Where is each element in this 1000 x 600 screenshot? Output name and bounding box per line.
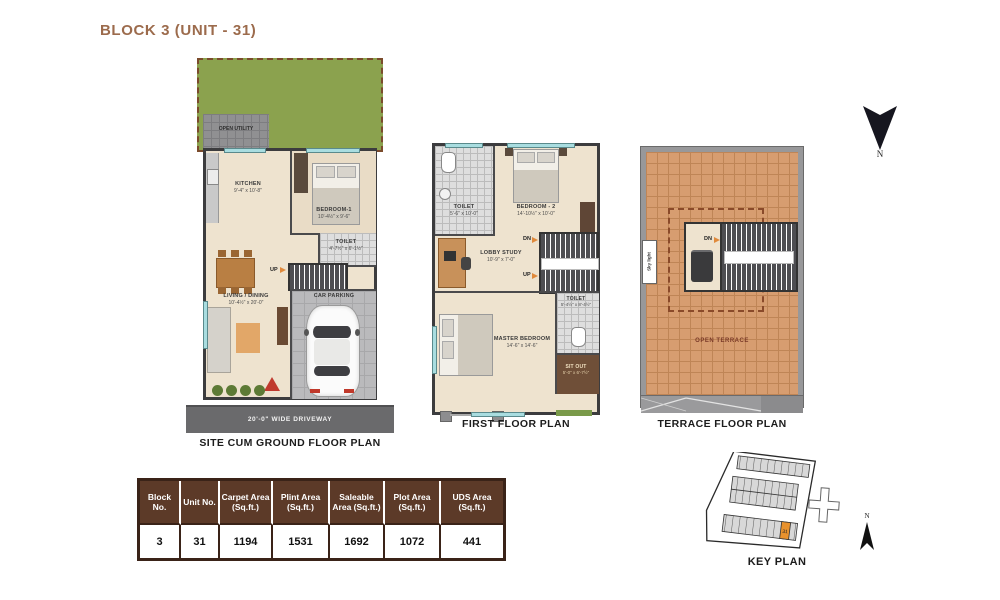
water-tank — [691, 250, 713, 282]
highlighted-plot-number: 31 — [782, 529, 788, 536]
shrub — [212, 385, 223, 396]
cell-saleable-area: 1692 — [330, 525, 385, 558]
terrace-lower-roof-band — [641, 395, 803, 413]
kitchen-counter — [206, 153, 219, 223]
stair-landing — [724, 251, 794, 264]
open-utility-area: OPEN UTILITY — [203, 114, 269, 148]
open-terrace-label-wrap: OPEN TERRACE — [682, 338, 762, 345]
first-floor-caption: FIRST FLOOR PLAN — [432, 418, 600, 430]
car-taillight — [344, 389, 354, 393]
key-plan-north-letter: N — [864, 512, 869, 520]
room-label-bedroom2: BEDROOM - 2 14'-10½" x 10'-0" — [493, 204, 579, 217]
terrace-floor-caption: TERRACE FLOOR PLAN — [641, 418, 803, 430]
room-label-bedroom1: BEDROOM-1 10'-4½" x 9'-6" — [298, 207, 370, 220]
window-icon — [507, 143, 575, 148]
key-plan-north-arrow-icon — [860, 522, 874, 550]
staircase — [720, 222, 798, 292]
key-plan-caption: KEY PLAN — [712, 556, 842, 568]
col-header-uds: UDS Area (Sq.ft.) — [441, 481, 503, 525]
cell-unit-no: 31 — [181, 525, 220, 558]
first-floor-plan: TOILET 5'-6" x 10'-0" BEDROOM - 2 14'-10… — [432, 143, 600, 415]
chair — [218, 250, 226, 257]
shrub — [226, 385, 237, 396]
room-label-toilet: TOILET 4'-7½" x 6'-1½" — [318, 239, 374, 252]
skylight-label: Sky light — [647, 243, 652, 281]
car-mirror — [304, 329, 309, 336]
stair-landing — [541, 258, 599, 270]
tv-console — [277, 307, 288, 345]
brochure-page: BLOCK 3 (UNIT - 31) OPEN UTILITY KITCHEN… — [0, 0, 1000, 600]
pillow — [442, 341, 454, 359]
sofa — [207, 307, 231, 373]
dn-arrow-icon — [714, 237, 720, 243]
key-plan-map: 31 N — [700, 452, 890, 556]
bed — [513, 149, 559, 203]
rug — [236, 323, 260, 353]
ground-floor-caption: SITE CUM GROUND FLOOR PLAN — [197, 437, 383, 449]
staircase — [539, 232, 599, 294]
col-header-carpet: Carpet Area (Sq.ft.) — [220, 481, 273, 525]
dn-label: DN — [523, 236, 531, 242]
north-arrow-icon: N — [858, 102, 902, 158]
pillow — [517, 152, 535, 163]
open-utility-label: OPEN UTILITY — [203, 126, 269, 132]
up-label: UP — [270, 267, 278, 273]
room-label-living-dining: LIVING / DINING 10'-4½" x 20'-0" — [210, 293, 282, 306]
shrub — [254, 385, 265, 396]
room-label-master-bedroom: MASTER BEDROOM 14'-6" x 14'-6" — [491, 336, 553, 349]
stair-headroom — [684, 222, 724, 292]
room-label-lobby-study: LOBBY STUDY 10'-9" x 7'-0" — [473, 250, 529, 263]
car-windshield — [313, 326, 351, 338]
window-icon — [471, 412, 525, 417]
study-desk — [438, 238, 466, 288]
room-label-kitchen: KITCHEN 9'-4" x 10'-8" — [220, 181, 276, 194]
gable-lines-icon — [641, 396, 803, 413]
kitchen-sink — [207, 169, 219, 185]
pillow — [537, 152, 555, 163]
window-icon — [203, 301, 208, 349]
pillow — [316, 166, 335, 178]
dn-arrow-icon — [532, 237, 538, 243]
wc-fixture — [441, 152, 456, 173]
area-table: Block No. Unit No. Carpet Area (Sq.ft.) … — [137, 478, 506, 561]
washbasin — [439, 188, 451, 200]
window-icon — [445, 143, 483, 148]
wardrobe — [294, 153, 308, 193]
pillow — [442, 319, 454, 337]
chair — [231, 250, 239, 257]
table-value-row: 3 31 1194 1531 1692 1072 441 — [140, 525, 503, 558]
laptop — [444, 251, 456, 261]
north-letter: N — [877, 149, 884, 158]
driveway-band: 20'-0" WIDE DRIVEWAY — [186, 405, 394, 433]
terrace-floor-plan: DN Sky light OPEN TERRACE — [641, 147, 803, 407]
cell-block-no: 3 — [140, 525, 181, 558]
toilet1-room — [435, 146, 495, 236]
cell-carpet-area: 1194 — [220, 525, 273, 558]
ground-floor-plan: OPEN UTILITY KITCHEN 9'-4" x 10'-8" — [197, 58, 383, 432]
cell-plot-area: 1072 — [385, 525, 441, 558]
driveway-label: 20'-0" WIDE DRIVEWAY — [248, 416, 332, 423]
col-header-saleable: Saleable Area (Sq.ft.) — [330, 481, 385, 525]
room-label-toilet2: TOILET 5'-4½" x 8'-4½" — [555, 296, 597, 307]
car — [306, 305, 360, 397]
nightstand — [505, 148, 513, 156]
skylight-tag: Sky light — [642, 240, 657, 284]
nightstand — [559, 148, 567, 156]
blanket — [458, 315, 492, 375]
table-header-row: Block No. Unit No. Carpet Area (Sq.ft.) … — [140, 481, 503, 525]
room-label-car-parking: CAR PARKING — [302, 293, 366, 300]
dining-table — [216, 258, 255, 288]
col-header-plot: Plot Area (Sq.ft.) — [385, 481, 441, 525]
window-icon — [306, 148, 360, 153]
car-taillight — [310, 389, 320, 393]
cell-uds-area: 441 — [441, 525, 503, 558]
window-icon — [432, 326, 437, 374]
col-header-unit: Unit No. — [181, 481, 220, 525]
pillow — [337, 166, 356, 178]
blanket — [514, 170, 558, 202]
col-header-block: Block No. — [140, 481, 181, 525]
page-title: BLOCK 3 (UNIT - 31) — [100, 22, 256, 39]
up-label: UP — [523, 272, 531, 278]
shrub — [240, 385, 251, 396]
up-arrow-icon — [532, 273, 538, 279]
ground-floor-house: KITCHEN 9'-4" x 10'-8" BEDROOM-1 10'-4½"… — [203, 148, 377, 400]
col-header-plint: Plint Area (Sq.ft.) — [273, 481, 330, 525]
entrance-arrow-icon — [264, 377, 280, 391]
hedge — [556, 410, 592, 416]
desk-chair — [461, 257, 471, 270]
bed — [439, 314, 493, 376]
car-rear-window — [314, 366, 350, 376]
up-arrow-icon — [280, 267, 286, 273]
dn-label: DN — [704, 236, 712, 242]
chair — [244, 250, 252, 257]
car-roof — [314, 339, 350, 365]
cell-plint-area: 1531 — [273, 525, 330, 558]
window-icon — [224, 148, 266, 153]
car-mirror — [355, 329, 360, 336]
wc-fixture — [571, 327, 586, 347]
room-label-toilet1: TOILET 5'-6" x 10'-0" — [437, 204, 491, 217]
clubhouse-outline — [808, 487, 840, 523]
room-label-sitout: SIT OUT 5'-0" x 6'-7½" — [555, 364, 597, 375]
staircase — [288, 263, 348, 291]
